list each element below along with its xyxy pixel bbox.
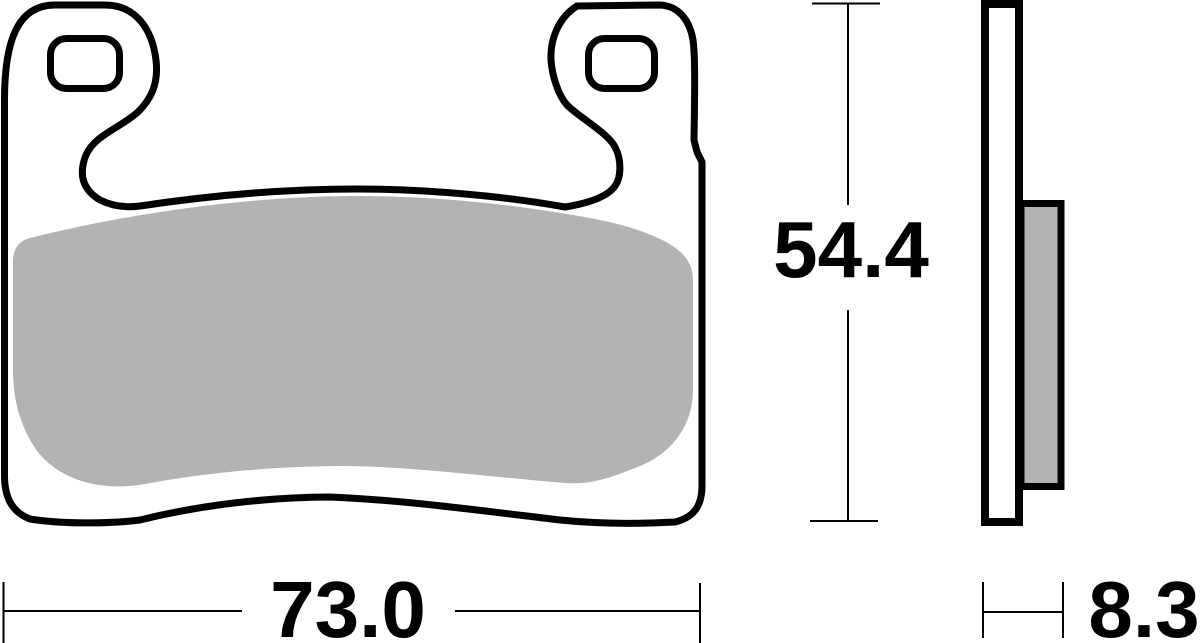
thickness-dimension-label: 8.3 bbox=[1088, 565, 1199, 643]
thickness-dimension-lines bbox=[983, 582, 1063, 638]
technical-drawing-canvas: 73.0 54.4 8.3 bbox=[0, 0, 1200, 643]
mounting-hole-right bbox=[589, 39, 655, 89]
friction-material-side bbox=[1021, 204, 1061, 487]
backing-plate-side bbox=[985, 4, 1019, 522]
front-view bbox=[5, 5, 703, 523]
side-view bbox=[985, 4, 1061, 522]
friction-material-front bbox=[13, 196, 693, 486]
technical-drawing-svg: 73.0 54.4 8.3 bbox=[0, 0, 1200, 643]
height-dimension-label: 54.4 bbox=[773, 205, 929, 294]
mounting-hole-left bbox=[51, 39, 120, 89]
width-dimension-label: 73.0 bbox=[270, 565, 426, 643]
